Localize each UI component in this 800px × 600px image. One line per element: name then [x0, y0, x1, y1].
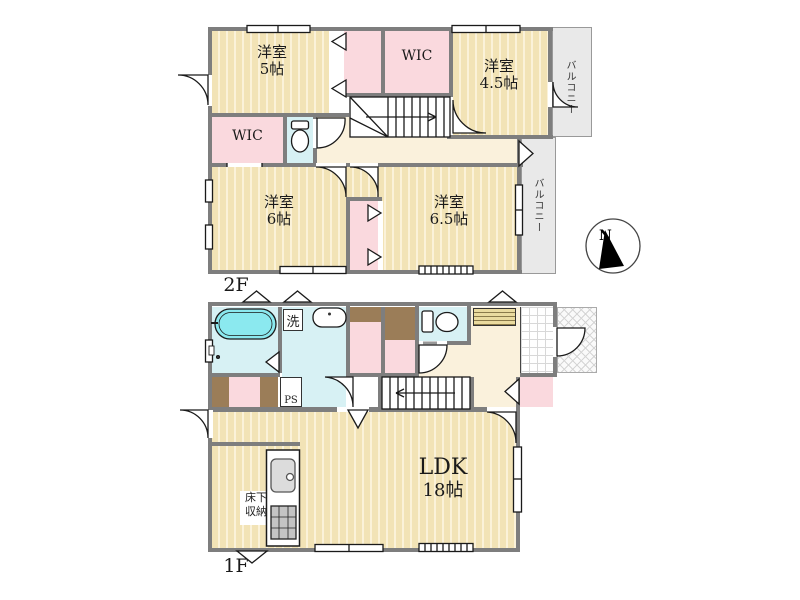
- stairs-1f: [382, 377, 470, 409]
- stairs-2f: [350, 97, 450, 137]
- toilet-icon: [292, 121, 309, 152]
- closet-door-marker: [266, 33, 533, 428]
- window: [206, 26, 523, 275]
- bathtub-icon: [211, 309, 276, 339]
- window: [206, 340, 522, 552]
- toilet-icon: [422, 311, 458, 345]
- sink-icon: [313, 308, 346, 327]
- floor-plan: PS 洗 床下 収納 洋室 5帖 WIC 洋室 4.5帖 WIC 洋室 6帖 洋…: [0, 0, 800, 600]
- compass: N: [586, 219, 640, 273]
- kitchen-counter: [267, 450, 300, 546]
- plan-linework: N: [0, 0, 800, 600]
- compass-north-label: N: [599, 228, 612, 244]
- kitchen-sink-icon: [271, 459, 295, 492]
- stove-icon: [271, 506, 296, 539]
